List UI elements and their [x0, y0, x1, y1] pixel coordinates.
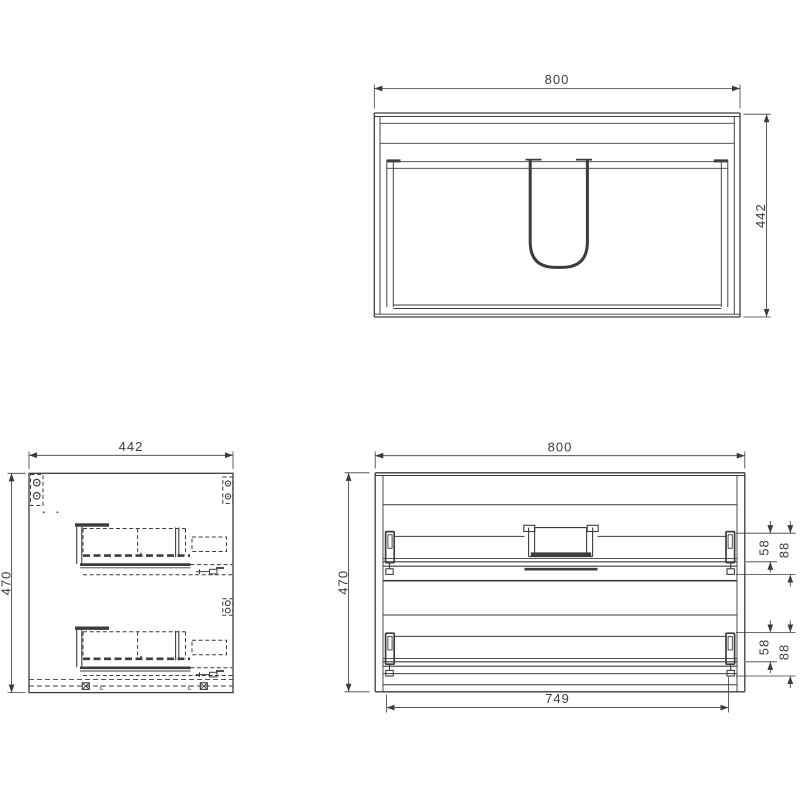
center-dot	[140, 656, 142, 658]
bracket-slot	[728, 535, 732, 549]
bracket-flange-left	[524, 525, 535, 531]
slide-end-bracket-lower-right	[726, 633, 735, 676]
screw-hole-icon	[225, 608, 230, 613]
screw-center-dot	[227, 483, 229, 485]
slide-rear-block	[192, 640, 227, 655]
rear-view-panel-lines	[383, 505, 737, 685]
top-view-width-dimension: 800	[374, 72, 740, 108]
pilot-dot	[43, 511, 45, 513]
top-view-depth-dimension: 442	[744, 114, 771, 317]
bracket-bottom-band	[531, 552, 591, 556]
screw-center-dot	[227, 496, 229, 498]
rear-view-height-dimension: 470	[335, 473, 369, 692]
hinge-plate-top-left	[31, 475, 44, 506]
side-view: c c 442 470	[0, 439, 233, 693]
slide-front-bracket	[77, 527, 179, 564]
screw-center-dot	[36, 482, 38, 484]
rear-view: 800 470 749 58 88 58 88	[335, 439, 795, 712]
side-view-height-label: 470	[0, 571, 14, 596]
slide-rear-block	[192, 537, 227, 552]
rear-view-width-label: 800	[548, 439, 573, 454]
bottom-fixing-strip: c c	[29, 680, 233, 692]
top-view-depth-label: 442	[753, 203, 768, 228]
top-view-panel-lines	[374, 117, 740, 315]
hook-body	[210, 672, 218, 677]
bracket-outline	[386, 633, 395, 664]
sink-cutout-u-shape	[530, 160, 587, 268]
hook-body	[210, 569, 218, 574]
sink-cutout-bracket	[524, 525, 598, 556]
bracket-slot	[388, 636, 392, 650]
hinge-plate-top-right	[223, 477, 233, 504]
slide-rear-hook	[196, 671, 224, 677]
lower-slide-offset-label: 88	[777, 644, 792, 661]
bracket-foot	[727, 569, 734, 575]
rear-view-inner-width-dimension: 749	[387, 677, 729, 713]
side-view-width-label: 442	[119, 439, 144, 454]
rear-view-thin-lines	[375, 476, 745, 692]
slide-end-bracket-upper-left	[386, 532, 395, 575]
top-view: 800 442	[374, 72, 771, 317]
bracket-slot	[388, 535, 392, 549]
screw-center-dot	[36, 495, 38, 497]
side-view-width-dimension: 442	[29, 439, 233, 469]
bracket-slot	[728, 636, 732, 650]
slide-end-bracket-lower-left	[386, 633, 395, 676]
hook-lines	[196, 672, 210, 677]
upper-slide-offset-label: 88	[777, 542, 792, 559]
bracket-plate-mid-right	[223, 599, 233, 616]
screw-hole-icon	[225, 601, 230, 606]
extension-lines	[29, 452, 233, 470]
slide-end-bracket-upper-right	[726, 532, 735, 575]
upper-back-offset-label: 58	[757, 539, 772, 556]
rear-view-inner-width-label: 749	[545, 691, 570, 706]
cam-mark-label: c	[188, 683, 192, 692]
side-view-height-dimension: 470	[0, 473, 26, 692]
slide-rear-hook	[196, 568, 224, 574]
top-view-width-label: 800	[545, 72, 570, 87]
rear-view-width-dimension: 800	[375, 439, 745, 468]
bracket-outline	[386, 532, 395, 563]
lower-back-offset-label: 58	[757, 639, 772, 656]
bracket-outline	[726, 532, 735, 563]
center-dot	[140, 553, 142, 555]
lower-drawer-slide-side	[75, 627, 232, 678]
bracket-walls	[529, 528, 593, 557]
hook-lines	[196, 569, 210, 574]
drawer-rail-lines	[383, 562, 737, 666]
slide-front-flange	[75, 627, 109, 630]
cam-mark-label: c	[100, 683, 104, 692]
technical-drawing-page: 800 442	[0, 0, 800, 800]
bracket-outline	[726, 633, 735, 664]
slide-front-flange	[75, 523, 109, 526]
slide-front-bracket	[77, 630, 179, 667]
upper-drawer-slide-side	[75, 523, 232, 575]
pilot-dot	[57, 511, 59, 513]
rear-view-height-label: 470	[335, 570, 350, 595]
bracket-foot	[386, 569, 393, 575]
cabinet-drawing-svg: 800 442	[0, 0, 800, 800]
